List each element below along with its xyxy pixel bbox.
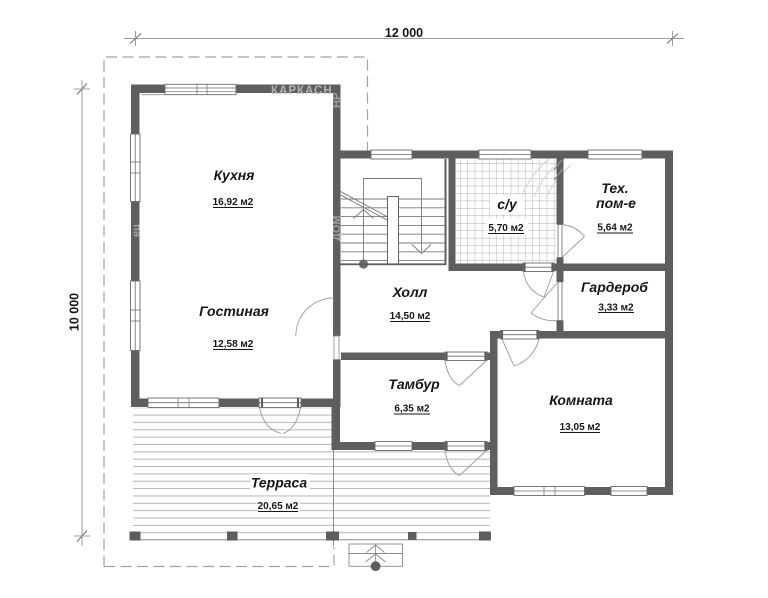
svg-text:Терраса: Терраса xyxy=(251,475,307,491)
svg-text:16,92 м2: 16,92 м2 xyxy=(213,197,254,208)
svg-text:Гардероб: Гардероб xyxy=(581,279,648,295)
svg-text:5,64 м2: 5,64 м2 xyxy=(597,223,633,234)
svg-text:КАРКАСН: КАРКАСН xyxy=(271,85,333,97)
svg-text:5,70 м2: 5,70 м2 xyxy=(488,223,524,234)
svg-text:Тамбур: Тамбур xyxy=(388,376,440,392)
svg-text:Кухня: Кухня xyxy=(214,167,255,183)
svg-text:с/у: с/у xyxy=(497,196,518,212)
svg-text:12,58 м2: 12,58 м2 xyxy=(213,339,254,350)
svg-text:3,33 м2: 3,33 м2 xyxy=(598,303,634,314)
svg-text:20,65 м2: 20,65 м2 xyxy=(258,501,299,512)
svg-text:пом-е: пом-е xyxy=(596,195,636,211)
svg-text:13,05 м2: 13,05 м2 xyxy=(560,422,601,433)
svg-text:Комната: Комната xyxy=(549,392,613,408)
svg-text:Холл: Холл xyxy=(392,284,428,300)
svg-text:14,50 м2: 14,50 м2 xyxy=(390,311,431,322)
svg-text:Гостиная: Гостиная xyxy=(199,303,269,319)
svg-text:6,35 м2: 6,35 м2 xyxy=(394,404,430,415)
svg-text:Тех.: Тех. xyxy=(601,180,628,196)
svg-text:10 000: 10 000 xyxy=(68,293,82,331)
svg-text:12 000: 12 000 xyxy=(385,26,423,40)
